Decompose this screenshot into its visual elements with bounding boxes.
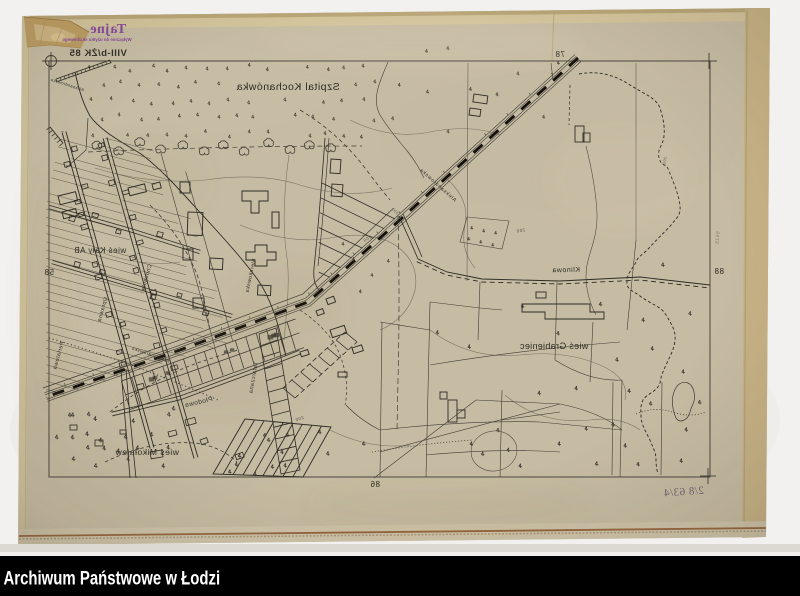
svg-text:Archiwum Państwowe w Łodzi: Archiwum Państwowe w Łodzi bbox=[4, 566, 221, 589]
